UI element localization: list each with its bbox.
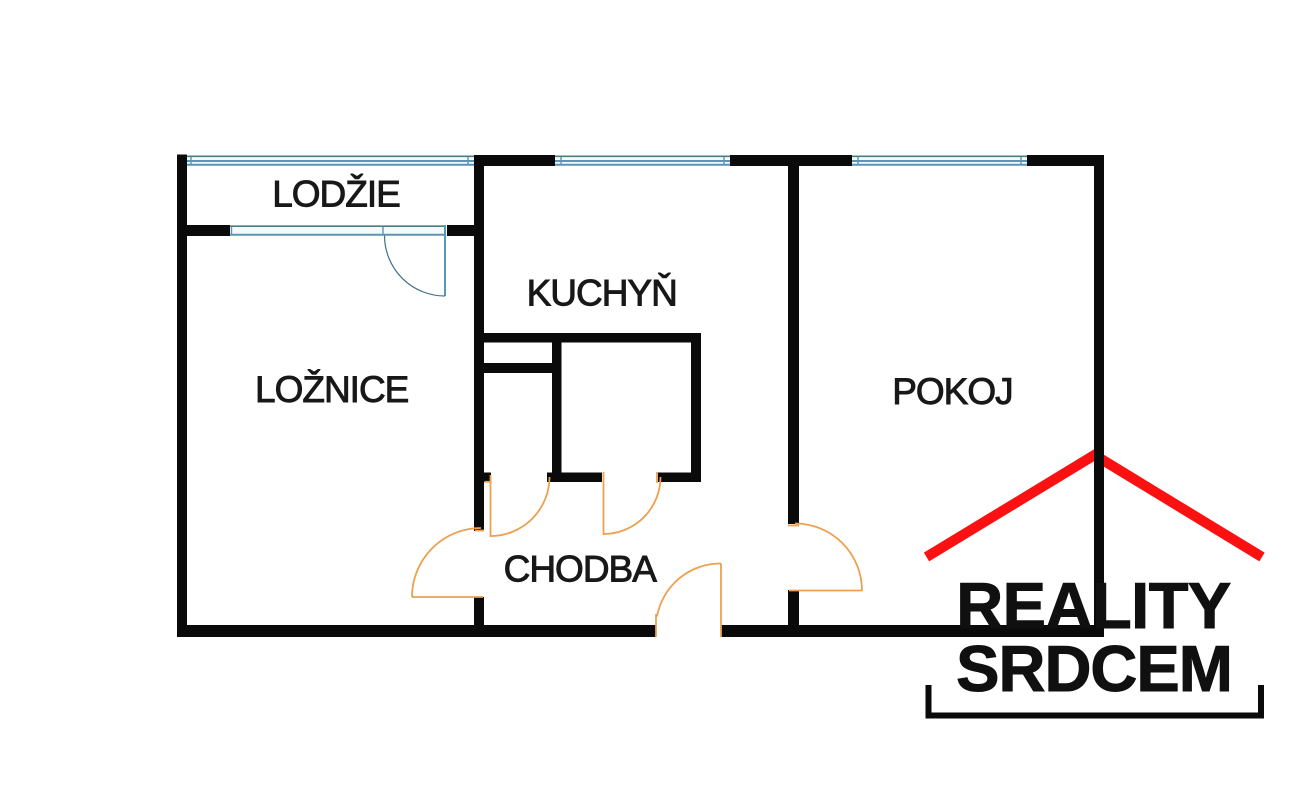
- svg-text:SRDCEM: SRDCEM: [956, 632, 1232, 705]
- svg-text:KUCHYŇ: KUCHYŇ: [527, 273, 677, 314]
- svg-text:LOŽNICE: LOŽNICE: [255, 369, 409, 410]
- svg-text:LODŽIE: LODŽIE: [272, 173, 400, 214]
- svg-text:CHODBA: CHODBA: [504, 549, 658, 590]
- svg-text:POKOJ: POKOJ: [892, 371, 1012, 412]
